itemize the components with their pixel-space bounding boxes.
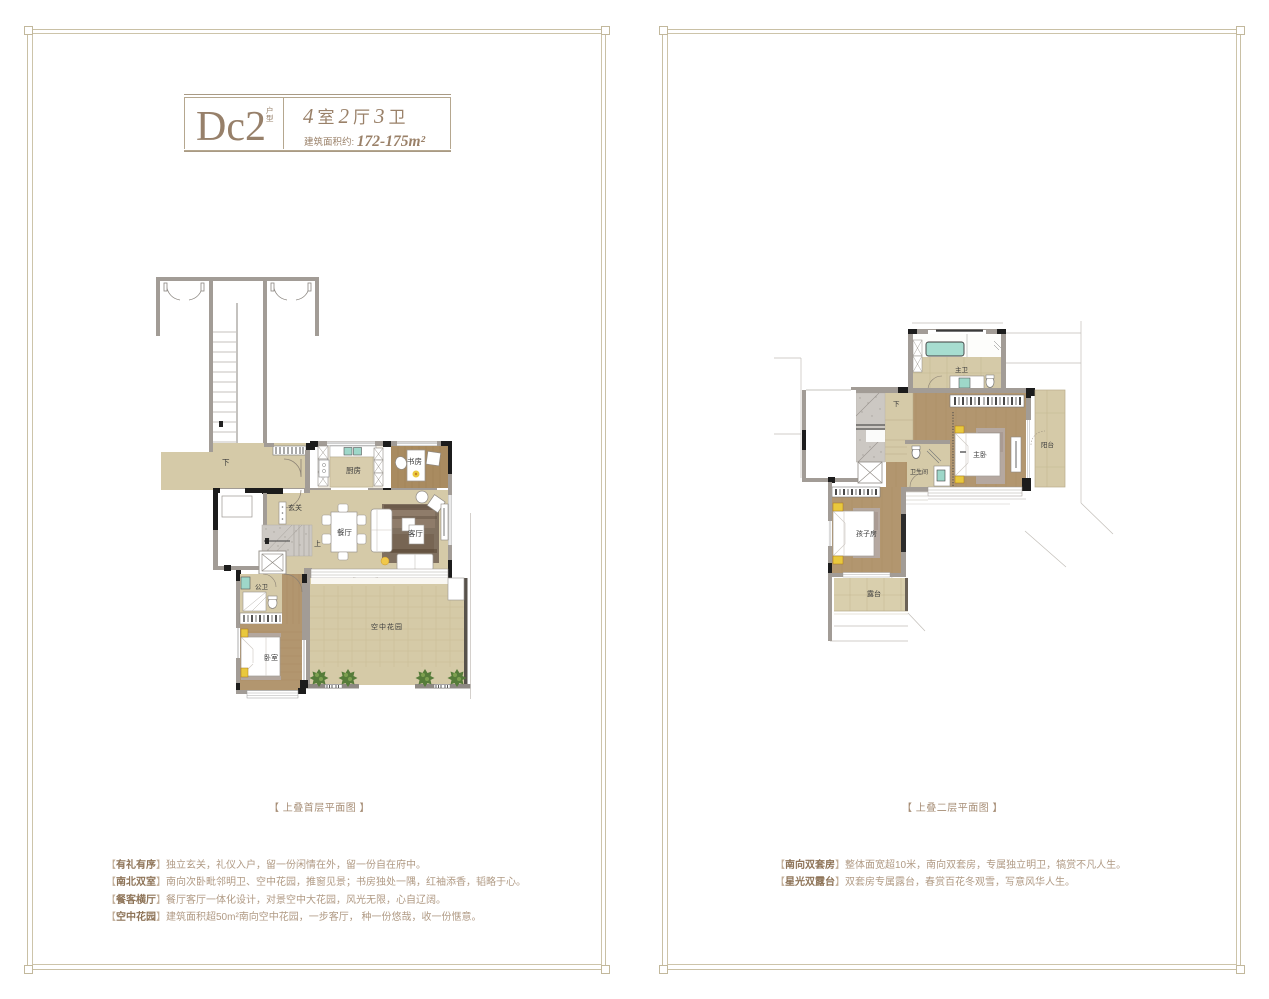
svg-text:书房: 书房 <box>407 456 422 466</box>
svg-text:玄关: 玄关 <box>288 503 302 512</box>
svg-text:上: 上 <box>314 539 321 548</box>
svg-text:卫生间: 卫生间 <box>910 468 928 476</box>
svg-text:露台: 露台 <box>867 589 881 598</box>
svg-text:公卫: 公卫 <box>255 583 269 591</box>
svg-text:孩子房: 孩子房 <box>856 529 877 538</box>
svg-text:厨房: 厨房 <box>346 465 361 475</box>
svg-text:空中花园: 空中花园 <box>371 622 403 631</box>
svg-text:餐厅: 餐厅 <box>337 528 352 537</box>
svg-text:主卫: 主卫 <box>955 365 969 374</box>
svg-text:阳台: 阳台 <box>1041 440 1054 449</box>
svg-text:下: 下 <box>222 458 230 467</box>
svg-text:主卧: 主卧 <box>973 450 987 459</box>
svg-text:客厅: 客厅 <box>408 528 423 538</box>
svg-text:下: 下 <box>893 400 900 408</box>
svg-text:卧室: 卧室 <box>264 653 278 662</box>
